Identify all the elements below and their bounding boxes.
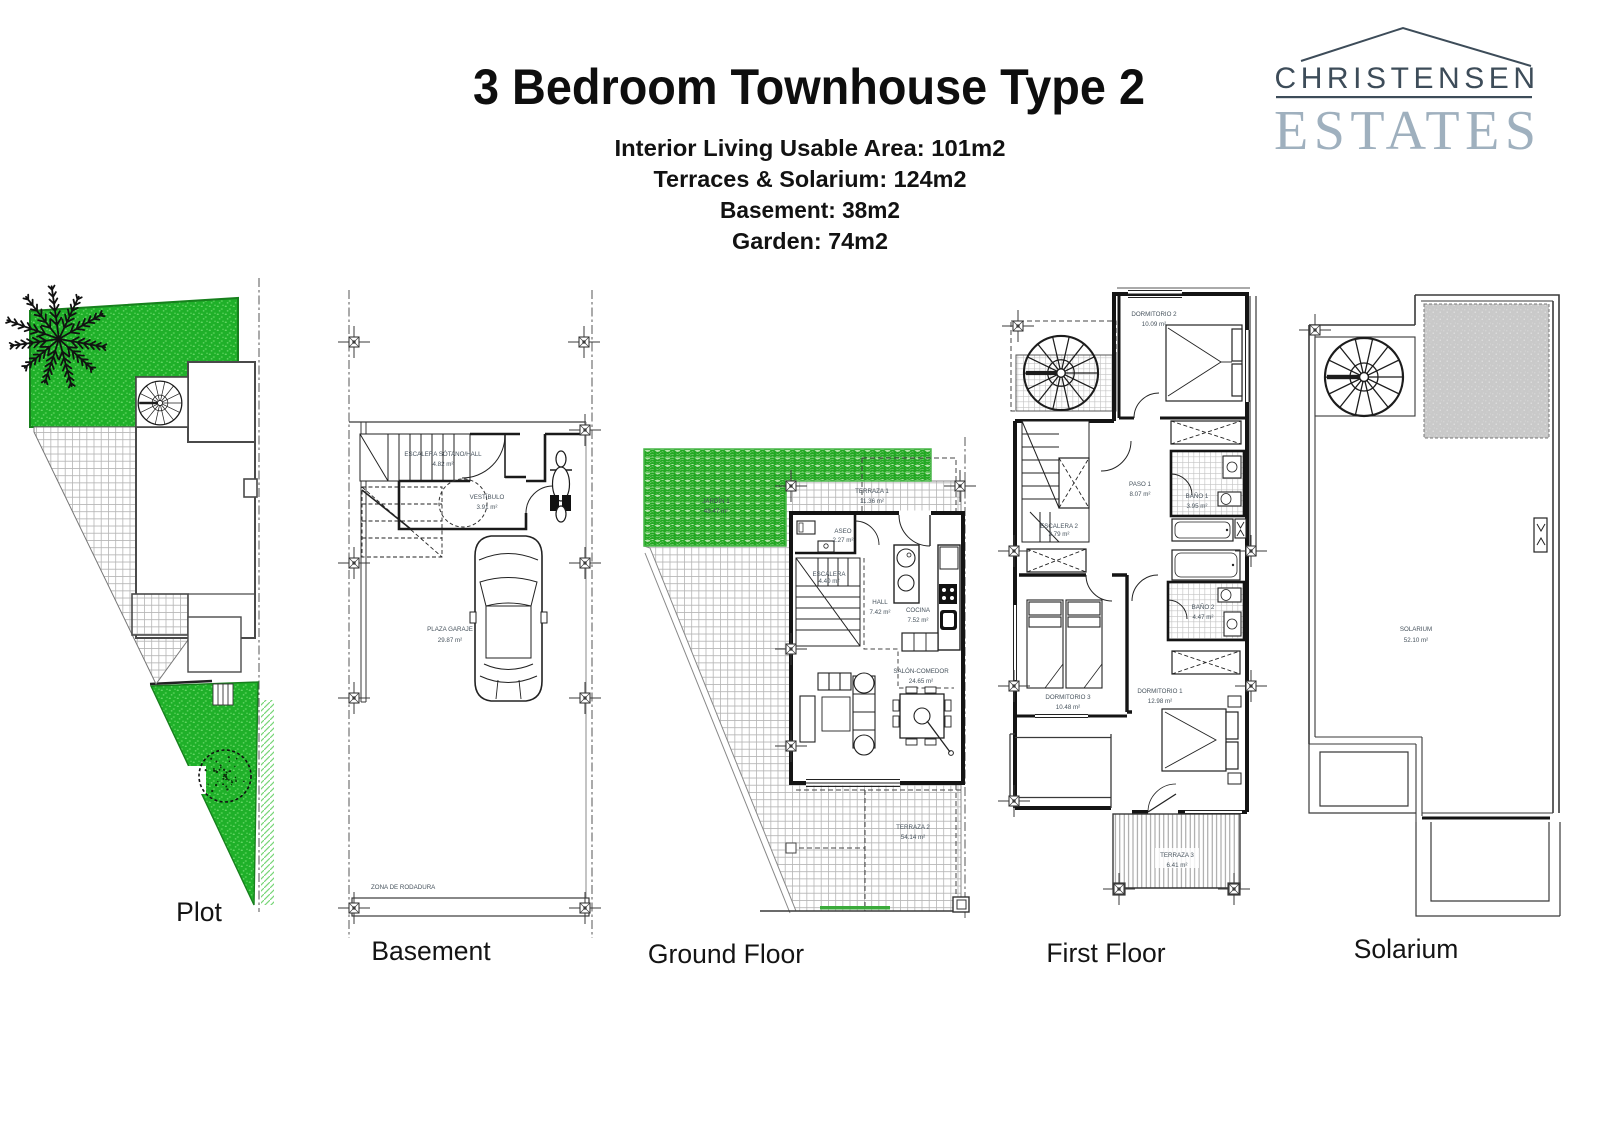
svg-text:29.87 m²: 29.87 m²: [438, 637, 462, 644]
svg-text:3.95 m²: 3.95 m²: [1187, 503, 1208, 510]
svg-text:54.14 m²: 54.14 m²: [901, 834, 925, 841]
svg-text:3.79 m²: 3.79 m²: [1049, 531, 1070, 538]
svg-text:Terraces & Solarium: 124m2: Terraces & Solarium: 124m2: [654, 166, 967, 192]
svg-text:10.09 m²: 10.09 m²: [1142, 321, 1166, 328]
svg-text:PLAZA GARAJE: PLAZA GARAJE: [427, 626, 473, 633]
svg-text:7.42 m²: 7.42 m²: [870, 609, 891, 616]
svg-text:TERRAZA 3: TERRAZA 3: [1160, 852, 1194, 859]
svg-text:First Floor: First Floor: [1046, 938, 1165, 968]
svg-text:Ground Floor: Ground Floor: [648, 939, 804, 969]
svg-text:PASO 1: PASO 1: [1129, 481, 1151, 488]
svg-text:11.36 m²: 11.36 m²: [860, 498, 884, 505]
svg-text:Basement: 38m2: Basement: 38m2: [720, 197, 900, 223]
svg-text:VESTÍBULO: VESTÍBULO: [470, 494, 505, 501]
svg-text:Plot: Plot: [176, 897, 222, 927]
svg-text:12.98 m²: 12.98 m²: [1148, 698, 1172, 705]
svg-text:Solarium: Solarium: [1354, 934, 1459, 964]
svg-text:ESTATES: ESTATES: [1274, 100, 1540, 162]
svg-text:ESCALERA SÓTANO/HALL: ESCALERA SÓTANO/HALL: [404, 451, 482, 458]
svg-text:8.07 m²: 8.07 m²: [1130, 491, 1151, 498]
svg-text:ESCALERA: ESCALERA: [812, 571, 846, 578]
svg-text:SOLARIUM: SOLARIUM: [1400, 626, 1432, 633]
svg-text:CHRISTENSEN: CHRISTENSEN: [1275, 62, 1540, 95]
svg-text:DORMITORIO 1: DORMITORIO 1: [1137, 688, 1183, 695]
svg-text:3.91 m²: 3.91 m²: [477, 504, 498, 511]
svg-text:ESCALERA 2: ESCALERA 2: [1040, 523, 1078, 530]
svg-text:10.48 m²: 10.48 m²: [1056, 704, 1080, 711]
svg-text:SALÓN-COMEDOR: SALÓN-COMEDOR: [893, 668, 949, 675]
svg-text:HALL: HALL: [872, 599, 888, 606]
svg-text:3 Bedroom Townhouse Type 2: 3 Bedroom Townhouse Type 2: [473, 59, 1145, 115]
svg-text:48.47 m²: 48.47 m²: [704, 508, 728, 515]
svg-text:ZONA DE RODADURA: ZONA DE RODADURA: [371, 884, 436, 891]
svg-text:4.40 m²: 4.40 m²: [819, 578, 840, 585]
svg-text:BAÑO 1: BAÑO 1: [1186, 493, 1209, 500]
svg-text:Basement: Basement: [371, 936, 491, 966]
svg-text:DORMITORIO 3: DORMITORIO 3: [1045, 694, 1091, 701]
svg-text:TERRAZA 1: TERRAZA 1: [855, 488, 889, 495]
svg-text:Interior Living Usable Area: 1: Interior Living Usable Area: 101m2: [615, 135, 1006, 161]
svg-text:6.41 m²: 6.41 m²: [1167, 862, 1188, 869]
svg-text:4.82 m²: 4.82 m²: [433, 461, 454, 468]
svg-text:2.27 m²: 2.27 m²: [833, 537, 854, 544]
svg-text:Garden: 74m2: Garden: 74m2: [732, 228, 888, 254]
svg-text:DORMITORIO 2: DORMITORIO 2: [1131, 311, 1177, 318]
svg-text:COCINA: COCINA: [906, 607, 931, 614]
svg-text:ASEO: ASEO: [834, 528, 851, 535]
svg-text:BAÑO 2: BAÑO 2: [1192, 604, 1215, 611]
svg-text:7.52 m²: 7.52 m²: [908, 617, 929, 624]
svg-text:JARDÍN 1: JARDÍN 1: [702, 498, 730, 505]
svg-text:24.65 m²: 24.65 m²: [909, 678, 933, 685]
svg-text:52.10 m²: 52.10 m²: [1404, 637, 1428, 644]
svg-text:4.47 m²: 4.47 m²: [1193, 614, 1214, 621]
svg-text:TERRAZA 2: TERRAZA 2: [896, 824, 930, 831]
